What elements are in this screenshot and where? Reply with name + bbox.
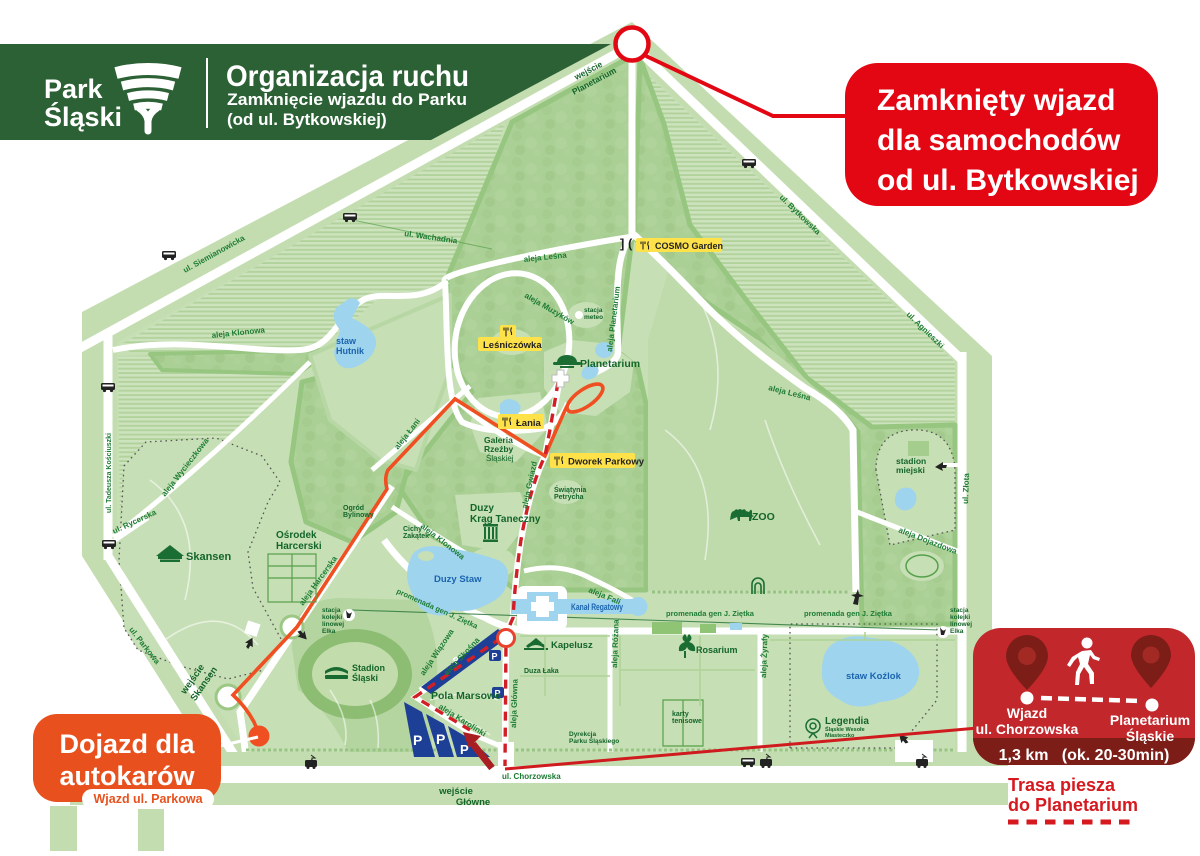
svg-text:dla samochodów: dla samochodów xyxy=(877,124,1121,157)
svg-text:Śląski: Śląski xyxy=(44,101,122,132)
svg-text:Leśniczówka: Leśniczówka xyxy=(483,340,542,351)
svg-text:stacja: stacja xyxy=(950,607,969,614)
svg-text:tenisowe: tenisowe xyxy=(672,718,702,725)
svg-text:Zamknięty wjazd: Zamknięty wjazd xyxy=(877,84,1115,117)
svg-text:meteo: meteo xyxy=(584,314,603,321)
svg-text:Legendia: Legendia xyxy=(825,716,869,727)
svg-text:linowej: linowej xyxy=(950,621,972,628)
svg-text:Organizacja ruchu: Organizacja ruchu xyxy=(226,60,469,93)
svg-text:Duzy: Duzy xyxy=(470,503,494,514)
svg-text:Kapelusz: Kapelusz xyxy=(551,640,593,651)
svg-text:Krąg Taneczny: Krąg Taneczny xyxy=(470,514,541,525)
svg-text:Dyrekcja: Dyrekcja xyxy=(569,731,596,738)
svg-text:staw: staw xyxy=(336,336,357,346)
svg-text:Świątynia: Świątynia xyxy=(554,485,586,494)
svg-text:kolejki: kolejki xyxy=(950,614,970,621)
svg-text:Rzeźby: Rzeźby xyxy=(484,444,514,454)
svg-text:P: P xyxy=(436,731,445,747)
svg-text:P: P xyxy=(413,732,422,748)
svg-text:linowej: linowej xyxy=(322,621,344,628)
svg-text:autokarów: autokarów xyxy=(59,761,195,791)
svg-text:Duza Łaka: Duza Łaka xyxy=(524,668,559,675)
svg-text:aleja Żyrafy: aleja Żyrafy xyxy=(759,633,770,678)
svg-text:Harcerski: Harcerski xyxy=(276,541,322,552)
svg-text:Duzy Staw: Duzy Staw xyxy=(434,574,482,585)
svg-text:Główne: Główne xyxy=(456,797,490,808)
svg-text:Wjazd ul. Parkowa: Wjazd ul. Parkowa xyxy=(93,792,203,806)
svg-text:Skansen: Skansen xyxy=(186,551,232,563)
svg-text:Stadion: Stadion xyxy=(352,663,385,673)
svg-text:Hutnik: Hutnik xyxy=(336,346,365,356)
svg-text:Kanał Regatowy: Kanał Regatowy xyxy=(571,602,623,612)
svg-text:Elka: Elka xyxy=(950,628,964,635)
svg-text:miejski: miejski xyxy=(896,465,925,475)
svg-text:Trasa piesza: Trasa piesza xyxy=(1008,775,1116,795)
svg-text:ul. Chorzowska: ul. Chorzowska xyxy=(976,721,1079,737)
svg-text:ul. Złota: ul. Złota xyxy=(961,473,971,505)
svg-text:promenada gen J. Ziętka: promenada gen J. Ziętka xyxy=(666,609,755,618)
svg-text:Petrycha: Petrycha xyxy=(554,494,584,501)
svg-text:Śląskie Wesołe: Śląskie Wesołe xyxy=(825,726,865,733)
svg-text:Rosarium: Rosarium xyxy=(696,645,738,655)
svg-text:karty: karty xyxy=(672,711,689,718)
svg-text:Zamknięcie wjazdu do Parku: Zamknięcie wjazdu do Parku xyxy=(227,90,467,109)
svg-text:Planetarium: Planetarium xyxy=(580,358,640,370)
svg-text:Parku Śląskiego: Parku Śląskiego xyxy=(569,736,619,745)
svg-text:ul. Chorzowska: ul. Chorzowska xyxy=(502,772,561,781)
svg-text:aleja Różana: aleja Różana xyxy=(610,619,621,668)
svg-text:Śląskiej: Śląskiej xyxy=(486,454,514,463)
svg-text:COSMO Garden: COSMO Garden xyxy=(655,241,723,251)
svg-text:Dojazd dla: Dojazd dla xyxy=(59,729,195,759)
svg-text:promenada gen J. Ziętka: promenada gen J. Ziętka xyxy=(804,609,893,618)
svg-text:Zakątek: Zakątek xyxy=(403,533,429,540)
svg-text:Pola Marsowe: Pola Marsowe xyxy=(431,690,501,702)
svg-text:stacja: stacja xyxy=(584,307,603,314)
svg-text:Śląskie: Śląskie xyxy=(1126,727,1174,744)
svg-text:ul. Tadeusza Kościuszki: ul. Tadeusza Kościuszki xyxy=(106,433,113,513)
svg-text:Dworek Parkowy: Dworek Parkowy xyxy=(568,457,645,468)
svg-text:do Planetarium: do Planetarium xyxy=(1008,795,1138,815)
svg-text:Park: Park xyxy=(44,74,104,104)
svg-text:stacja: stacja xyxy=(322,607,341,614)
svg-text:kolejki: kolejki xyxy=(322,614,342,621)
svg-text:wejście: wejście xyxy=(438,786,473,797)
svg-text:1,3 km (ok. 20-30min): 1,3 km (ok. 20-30min) xyxy=(999,747,1170,764)
svg-text:od ul. Bytkowskiej: od ul. Bytkowskiej xyxy=(877,164,1139,197)
svg-text:Ogród: Ogród xyxy=(343,505,364,512)
svg-text:ZOO: ZOO xyxy=(752,511,775,523)
svg-text:Łania: Łania xyxy=(516,418,542,429)
svg-text:Wjazd: Wjazd xyxy=(1007,705,1047,721)
svg-text:aleja Główna: aleja Główna xyxy=(509,678,520,728)
svg-text:Planetarium: Planetarium xyxy=(1110,712,1190,728)
svg-text:Ośrodek: Ośrodek xyxy=(276,530,317,541)
svg-text:staw Koźlok: staw Koźlok xyxy=(846,671,902,682)
svg-text:Śląski: Śląski xyxy=(352,672,378,683)
svg-text:(od ul. Bytkowskiej): (od ul. Bytkowskiej) xyxy=(227,110,387,129)
svg-text:Bylinowy: Bylinowy xyxy=(343,512,374,519)
svg-text:P: P xyxy=(492,652,498,662)
svg-text:] (: ] ( xyxy=(620,236,633,251)
svg-text:Elka: Elka xyxy=(322,628,336,635)
svg-text:Cichy: Cichy xyxy=(403,526,422,533)
